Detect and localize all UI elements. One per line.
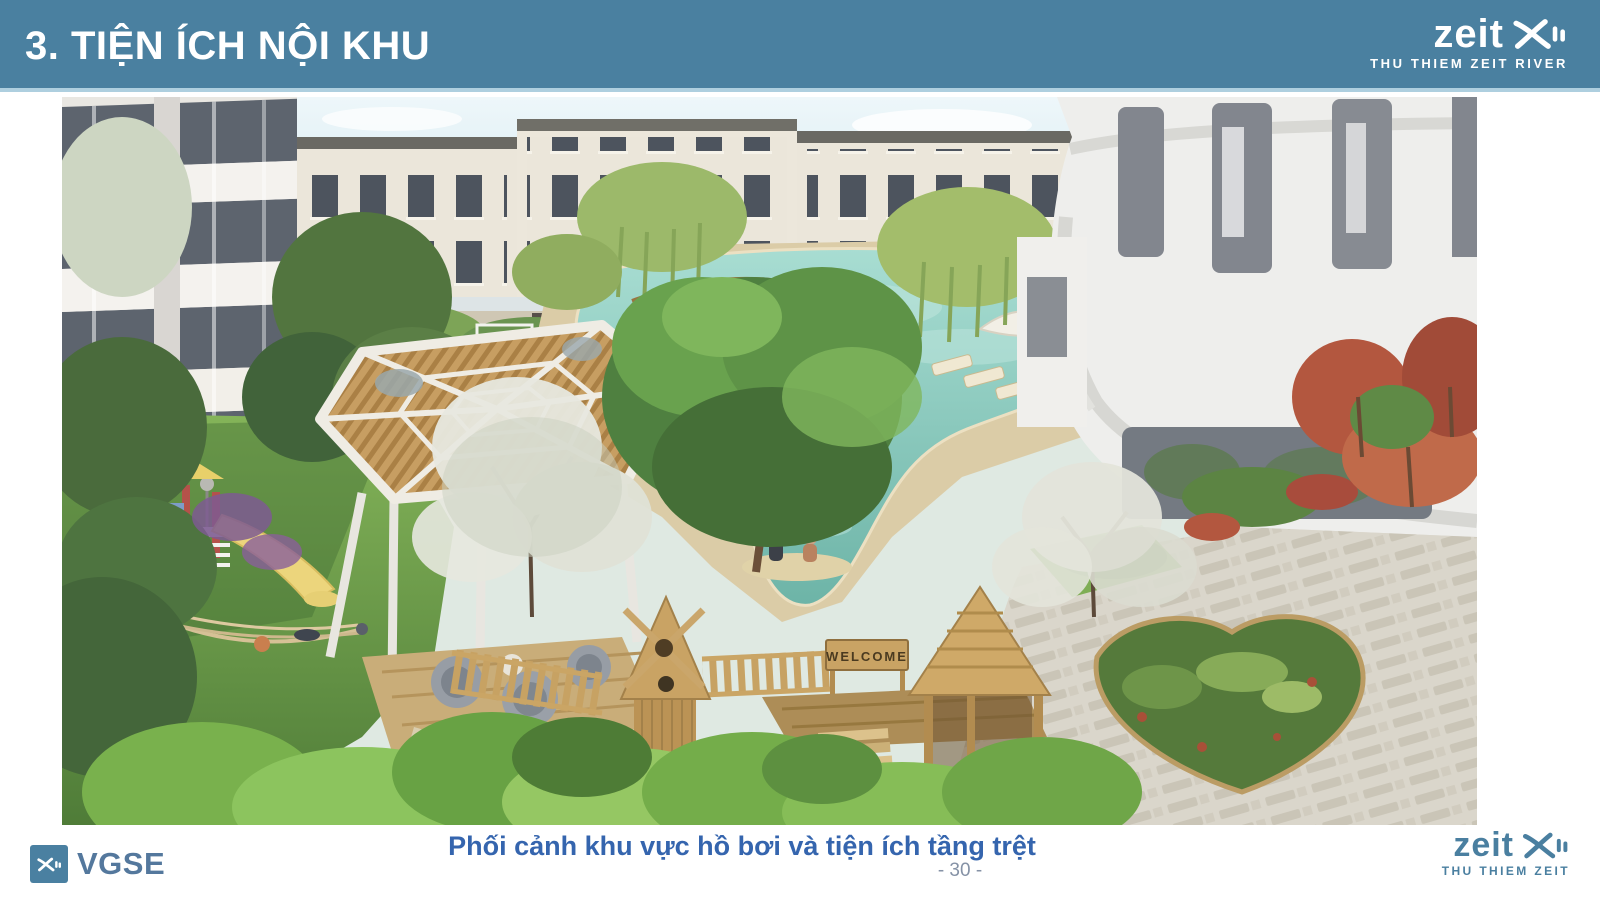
zeit-wordmark: zeit (1453, 828, 1514, 862)
zeit-mark-icon (36, 856, 62, 873)
vgse-wordmark: VGSE (77, 846, 165, 882)
welcome-sign-text: WELCOME (826, 649, 908, 664)
figure-caption: Phối cảnh khu vực hồ bơi và tiện ích tần… (62, 831, 1422, 862)
zeit-tagline: THU THIEM ZEIT (1442, 864, 1570, 878)
zeit-logo-footer: zeit THU THIEM ZEIT (1442, 828, 1570, 878)
page-title: 3. TIỆN ÍCH NỘI KHU (25, 0, 430, 88)
presentation-slide: 3. TIỆN ÍCH NỘI KHU zeit THU THIEM ZEIT … (0, 0, 1600, 900)
main-render-image: WELCOME (62, 97, 1477, 825)
zeit-tagline: THU THIEM ZEIT RIVER (1370, 56, 1568, 71)
zeit-mark-icon (1520, 830, 1570, 861)
zeit-wordmark: zeit (1433, 14, 1504, 54)
vgse-logo: VGSE (30, 845, 165, 883)
zeit-mark-icon (1510, 16, 1568, 52)
vgse-badge-icon (30, 845, 68, 883)
slide-header-bar: 3. TIỆN ÍCH NỘI KHU zeit THU THIEM ZEIT … (0, 0, 1600, 92)
courtyard-scene: WELCOME (62, 97, 1477, 825)
zeit-logo-header: zeit THU THIEM ZEIT RIVER (1370, 14, 1568, 71)
page-number: - 30 - (900, 860, 1020, 882)
